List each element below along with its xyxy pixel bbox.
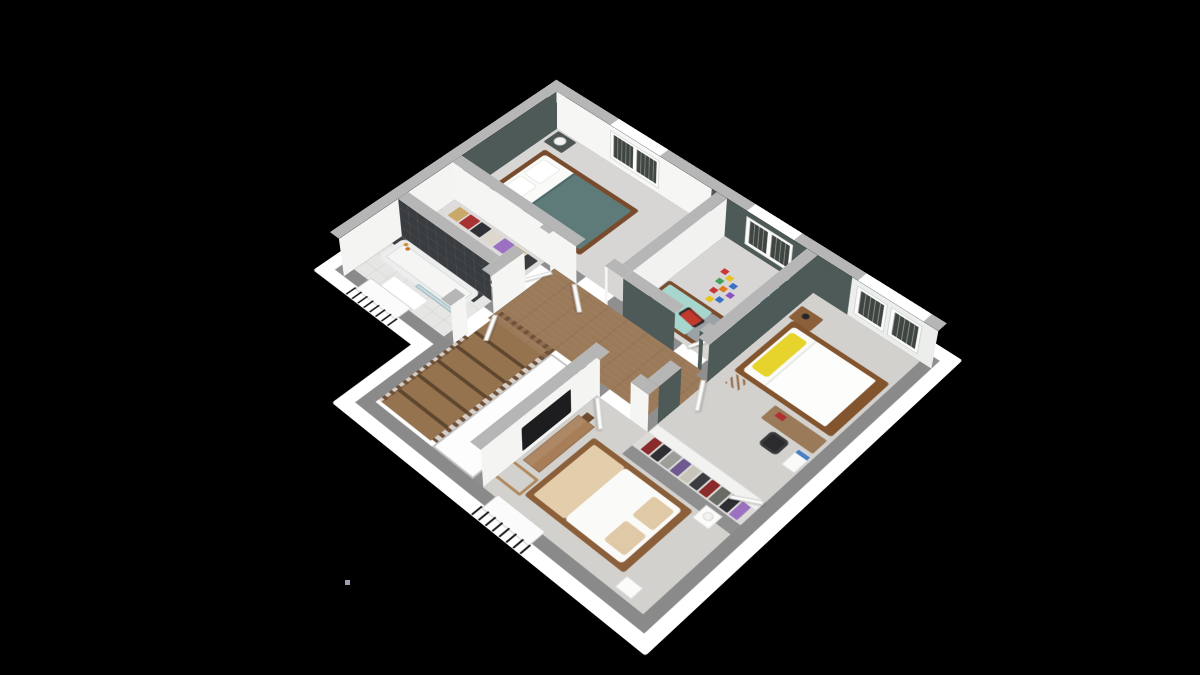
render-artifact-dot xyxy=(345,580,350,585)
bedroom3-lamp-icon xyxy=(700,510,715,523)
wardrobe-corridor-door xyxy=(729,494,764,505)
floorplan-plan xyxy=(257,117,940,634)
step-wall-cut xyxy=(355,337,453,410)
wardrobe-back-panels xyxy=(648,424,766,511)
bedroom2-valet-stand-icon xyxy=(725,374,748,392)
corridor-south-wall-base xyxy=(622,445,740,534)
bedroom3-window-railing-icon xyxy=(471,506,532,555)
wardrobe-hanging-clothes xyxy=(641,437,752,520)
bedroom3-cushion2 xyxy=(603,520,646,556)
bedroom3-duvet xyxy=(564,467,682,563)
bedroom3-bed-frame xyxy=(524,437,693,573)
bedroom3-photo-frame-icon xyxy=(581,412,594,422)
bedroom2-desk-book-icon xyxy=(774,412,787,422)
bedroom2-office-chair xyxy=(758,430,791,456)
dressing-corridor-floor xyxy=(622,432,756,534)
bedroom3-cushion xyxy=(632,496,675,531)
bedroom2-desk xyxy=(761,405,827,454)
bedroom3-beige-throw xyxy=(533,444,625,519)
floorplan-render-canvas: { "scene": { "type": "3d-dollhouse-floor… xyxy=(0,0,1200,675)
stair-railing-west xyxy=(379,335,470,403)
bedroom2-duvet xyxy=(764,341,876,427)
bedroom3-nightstand xyxy=(692,505,723,530)
bedroom2-drawer-unit xyxy=(781,448,812,473)
bedroom3-door xyxy=(595,397,603,429)
bedroom3-nightstand-south xyxy=(615,576,644,600)
